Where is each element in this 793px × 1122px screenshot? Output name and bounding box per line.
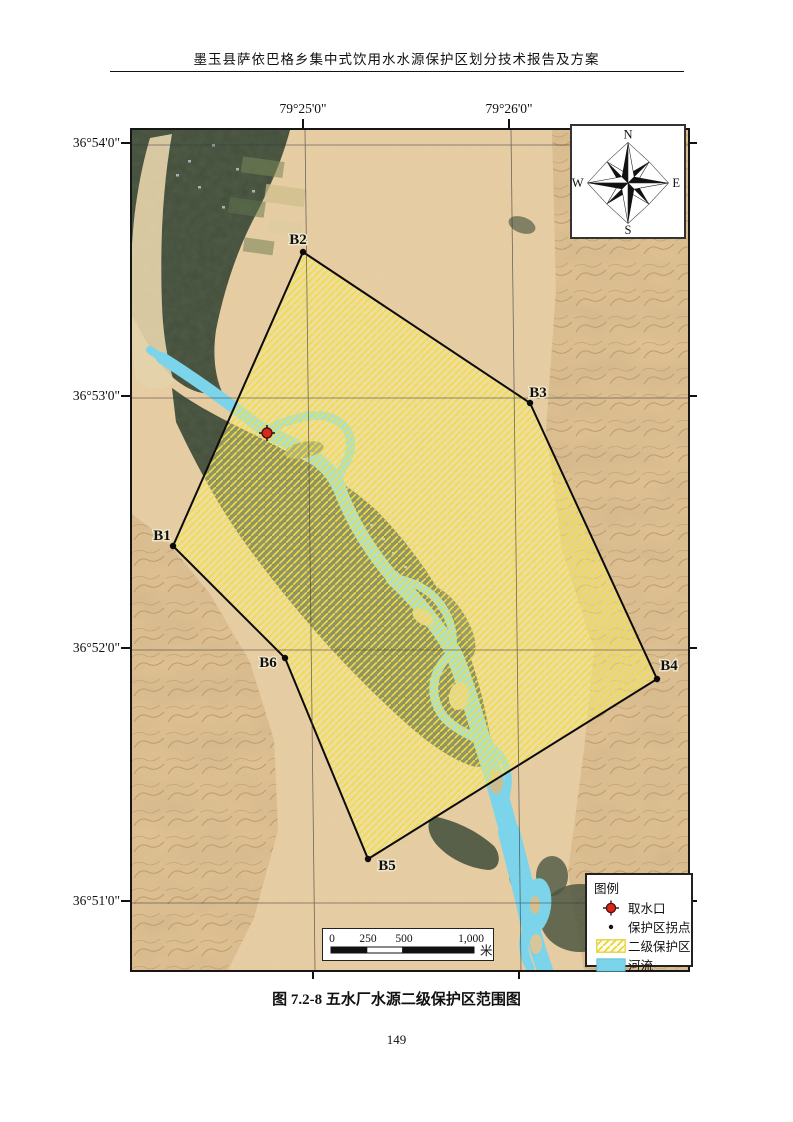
lat-label-36-52: 36°52'0": [48, 640, 120, 656]
lat-label-36-51: 36°51'0": [48, 893, 120, 909]
legend-item-zone: 二级保护区: [587, 936, 691, 955]
water-swatch-icon: [594, 958, 628, 972]
legend-item-intake: 取水口: [587, 898, 691, 917]
legend-label: 河流: [628, 955, 653, 974]
lat-tick: [121, 142, 130, 144]
intake-marker-icon: [594, 900, 628, 916]
scale-segments: [331, 947, 474, 953]
svg-text:500: 500: [395, 933, 413, 945]
label-b5: B5: [378, 858, 396, 874]
legend-label: 保护区拐点: [628, 917, 691, 936]
legend-item-river: 河流: [587, 955, 691, 974]
map-canvas: B1 B2 B3 B4 B5 B6: [130, 128, 690, 972]
page-number: 149: [0, 1032, 793, 1048]
compass-n: N: [623, 128, 632, 142]
scale-bar: 0 250 500 1,000 米: [322, 928, 494, 961]
lon-label-79-26: 79°26'0": [464, 101, 554, 117]
scale-unit: 米: [480, 944, 493, 958]
label-b3: B3: [529, 385, 547, 401]
compass-star: [587, 142, 668, 223]
lat-tick: [121, 395, 130, 397]
lon-label-79-25: 79°25'0": [258, 101, 348, 117]
lon-tick: [508, 119, 510, 128]
svg-text:250: 250: [359, 933, 377, 945]
scale-labels: 0 250 500 1,000: [329, 933, 484, 945]
label-b2: B2: [289, 232, 307, 248]
page-header: 墨玉县萨依巴格乡集中式饮用水水源保护区划分技术报告及方案: [0, 48, 793, 68]
legend-label: 取水口: [628, 898, 666, 917]
legend-title: 图例: [594, 878, 691, 897]
satellite-map: B1 B2 B3 B4 B5 B6: [132, 130, 688, 970]
label-b4: B4: [660, 658, 678, 674]
svg-text:0: 0: [329, 933, 335, 945]
legend-item-vertex: 保护区拐点: [587, 917, 691, 936]
compass-w: W: [572, 176, 584, 190]
compass-e: E: [672, 176, 680, 190]
header-rule: [110, 71, 684, 72]
legend-label: 二级保护区: [628, 936, 691, 955]
lat-label-36-53: 36°53'0": [48, 388, 120, 404]
lat-label-36-54: 36°54'0": [48, 135, 120, 151]
label-b6: B6: [259, 655, 277, 671]
lat-tick: [121, 900, 130, 902]
compass-rose: N E S W: [570, 124, 686, 239]
lon-tick: [302, 119, 304, 128]
figure-caption: 图 7.2-8 五水厂水源二级保护区范围图: [0, 988, 793, 1009]
compass-s: S: [625, 223, 632, 237]
report-page: 墨玉县萨依巴格乡集中式饮用水水源保护区划分技术报告及方案 79°25'0" 79…: [0, 0, 793, 1122]
lat-tick: [121, 647, 130, 649]
hatch-swatch-icon: [594, 939, 628, 953]
legend: 图例 取水口 保护区拐点: [585, 873, 693, 967]
label-b1: B1: [153, 528, 171, 544]
vertex-dot-icon: [594, 922, 628, 932]
